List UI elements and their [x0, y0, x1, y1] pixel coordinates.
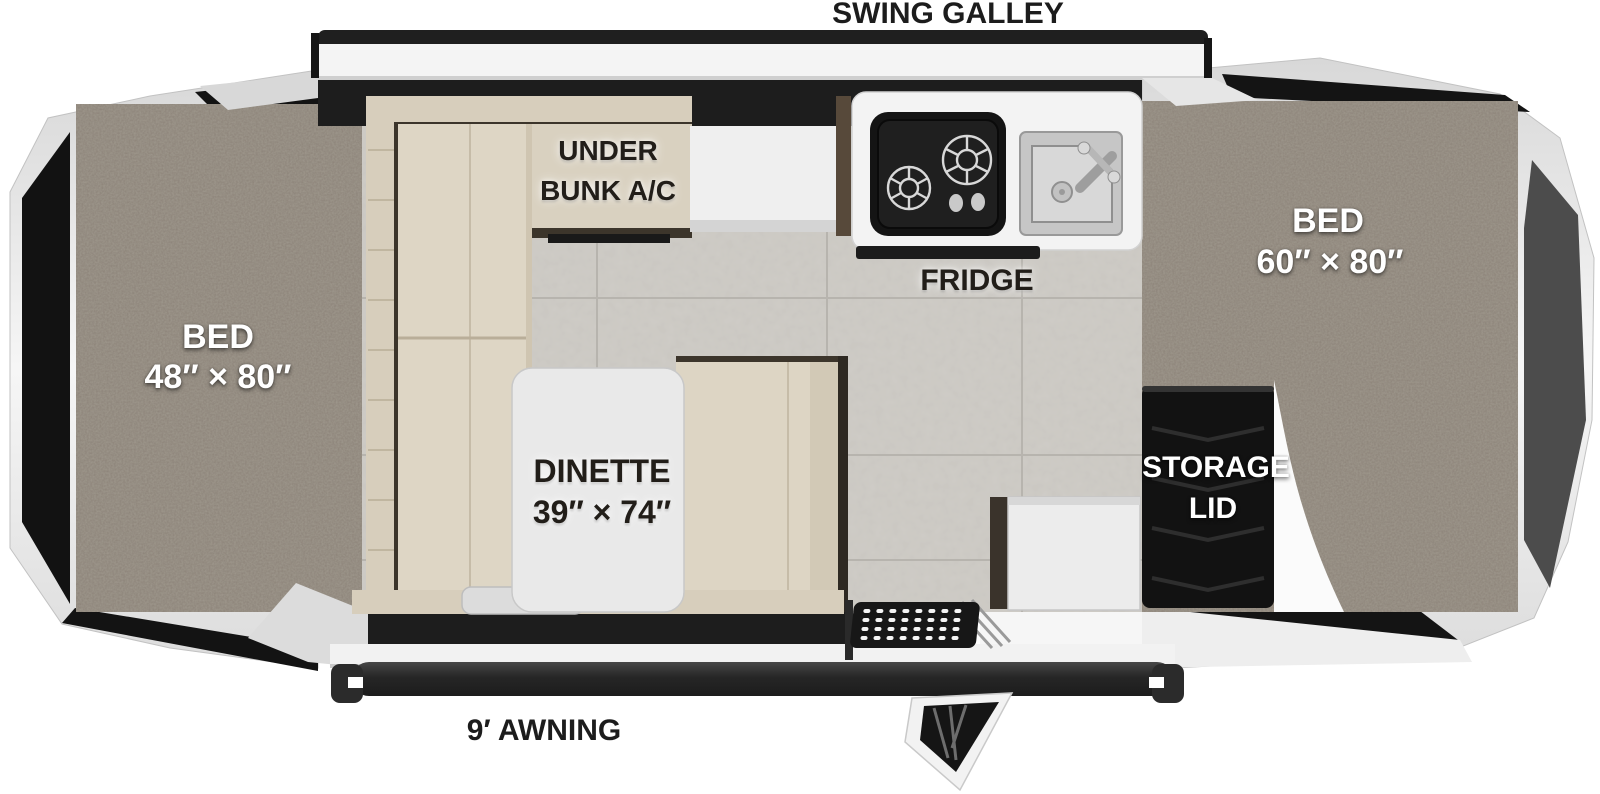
fridge-vent — [856, 246, 1040, 259]
storage-lid-label-line2: LID — [1189, 494, 1237, 524]
stove-icon — [870, 112, 1006, 236]
storage-lid-label-line1: STORAGE — [1142, 453, 1290, 483]
dinette-table — [512, 368, 684, 612]
under-bunk-label-line2: BUNK A/C — [540, 177, 676, 205]
awning-bar — [331, 662, 1184, 703]
left-bed-side-panel — [22, 132, 70, 604]
under-bunk-label-line1: UNDER — [558, 137, 658, 165]
floorplan-canvas: SWING GALLEY BED 48″ × 80″ BED 60″ × 80″… — [0, 0, 1600, 794]
bed-left-label: BED — [182, 320, 254, 354]
swing-galley-label: SWING GALLEY — [832, 0, 1064, 29]
sink-icon — [1020, 132, 1122, 235]
galley-cabinet — [690, 126, 838, 226]
bed-right-label: BED — [1292, 204, 1364, 238]
dinette-size: 39″ × 74″ — [533, 496, 671, 528]
bed-left-size: 48″ × 80″ — [145, 360, 292, 394]
step-grate-icon — [849, 602, 980, 648]
floorplan-drawing — [0, 0, 1600, 794]
door-cabinet — [990, 497, 1140, 610]
awning-label: 9′ AWNING — [467, 716, 621, 746]
fridge-label: FRIDGE — [920, 266, 1033, 296]
entry-step-icon — [905, 693, 1012, 790]
stove-knob — [949, 194, 963, 212]
dinette-bench-right — [676, 362, 812, 612]
dinette-label: DINETTE — [534, 455, 671, 487]
right-bed-side-panel — [1524, 160, 1586, 588]
stove-knob — [971, 193, 985, 211]
ac-vent — [548, 234, 670, 243]
galley-divider — [836, 96, 851, 236]
bottom-wall — [318, 612, 848, 644]
bed-right-size: 60″ × 80″ — [1257, 245, 1404, 279]
